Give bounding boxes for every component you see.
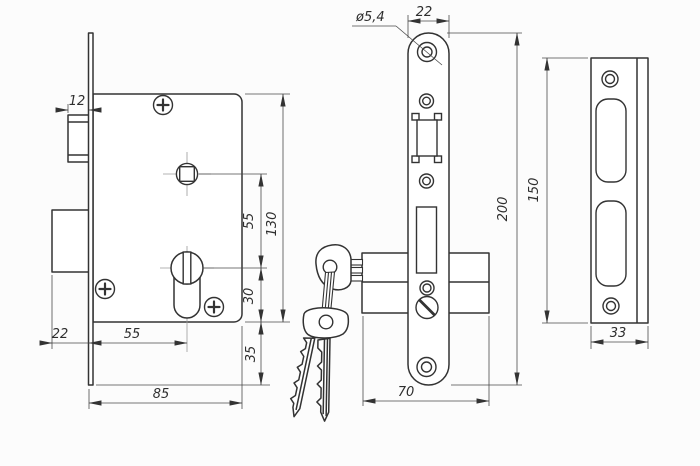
- latch-opening: [412, 114, 442, 163]
- phillips-screw-top-icon: [154, 96, 173, 115]
- dim-plate-height: 200: [496, 197, 511, 222]
- phillips-screw-left-icon: [96, 280, 115, 299]
- dim-backset: 55: [124, 327, 141, 342]
- deadbolt-side: [52, 210, 93, 272]
- dim-case-length: 70: [398, 385, 415, 400]
- faceplate-screw-hole-bottom: [417, 358, 436, 377]
- dim-deadbolt-throw: 22: [52, 327, 69, 342]
- dim-cylinder-to-case-bottom: 30: [242, 288, 257, 305]
- lock-drawing-canvas: 55 130 30 35 12 22 55 85: [0, 0, 700, 466]
- dim-strike-height: 150: [527, 178, 542, 203]
- deadbolt-opening: [417, 207, 437, 273]
- hanging-keys: [287, 308, 348, 421]
- keyway-slot: [183, 252, 191, 284]
- dim-hole-diameter: ø5,4: [355, 10, 385, 25]
- side-view: 55 130 30 35 12 22 55 85: [40, 33, 290, 409]
- faceplate-hole-lower: [420, 174, 434, 188]
- dim-plate-width: 22: [416, 5, 433, 20]
- dim-case-depth: 85: [153, 387, 170, 402]
- faceplate-hole-upper: [420, 94, 434, 108]
- cylinder-fixing-screw: [416, 297, 438, 319]
- strike-latch-cutout: [596, 99, 626, 182]
- dim-latch-throw: 12: [69, 94, 86, 109]
- lock-case-body: [93, 94, 242, 322]
- dim-case-bottom-to-plate: 35: [244, 346, 259, 363]
- front-view: 22 ø5,4 200 70: [287, 5, 522, 421]
- dim-case-height: 130: [265, 212, 280, 237]
- strike-deadbolt-cutout: [596, 201, 626, 286]
- faceplate-edge: [89, 33, 94, 385]
- dim-strike-width: 33: [610, 326, 627, 341]
- dim-spindle-to-cylinder: 55: [242, 213, 257, 230]
- strike-view: 150 33: [527, 58, 648, 349]
- strike-screw-hole-bottom: [603, 298, 619, 314]
- cylinder-fixing-ring: [420, 281, 434, 295]
- technical-drawing-page: 55 130 30 35 12 22 55 85: [0, 0, 700, 466]
- phillips-screw-right-icon: [205, 298, 224, 317]
- strike-screw-hole-top: [602, 71, 618, 87]
